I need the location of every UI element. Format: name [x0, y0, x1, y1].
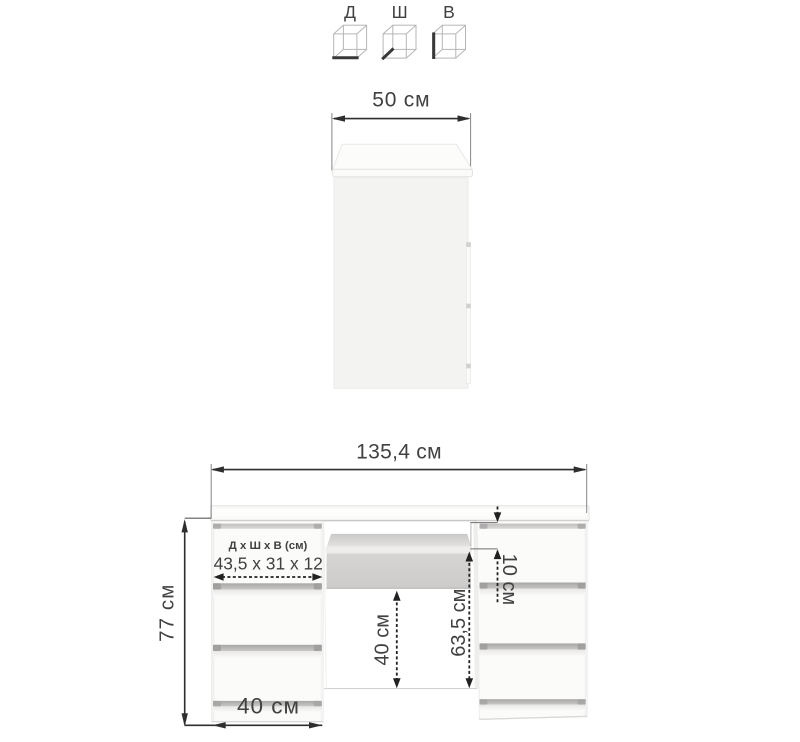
svg-text:Д: Д: [344, 2, 356, 22]
svg-text:40 см: 40 см: [372, 614, 394, 666]
svg-text:50 см: 50 см: [372, 88, 430, 111]
svg-text:77 см: 77 см: [156, 584, 179, 642]
svg-text:43,5 х 31 х 12: 43,5 х 31 х 12: [214, 553, 323, 573]
svg-text:В: В: [443, 2, 455, 22]
svg-text:63,5 см: 63,5 см: [448, 589, 470, 657]
svg-text:10 см: 10 см: [498, 554, 520, 606]
svg-text:40 см: 40 см: [237, 694, 300, 719]
svg-text:Ш: Ш: [392, 2, 408, 22]
svg-text:135,4 см: 135,4 см: [356, 441, 442, 464]
svg-text:Д х Ш х В (см): Д х Ш х В (см): [229, 540, 308, 552]
